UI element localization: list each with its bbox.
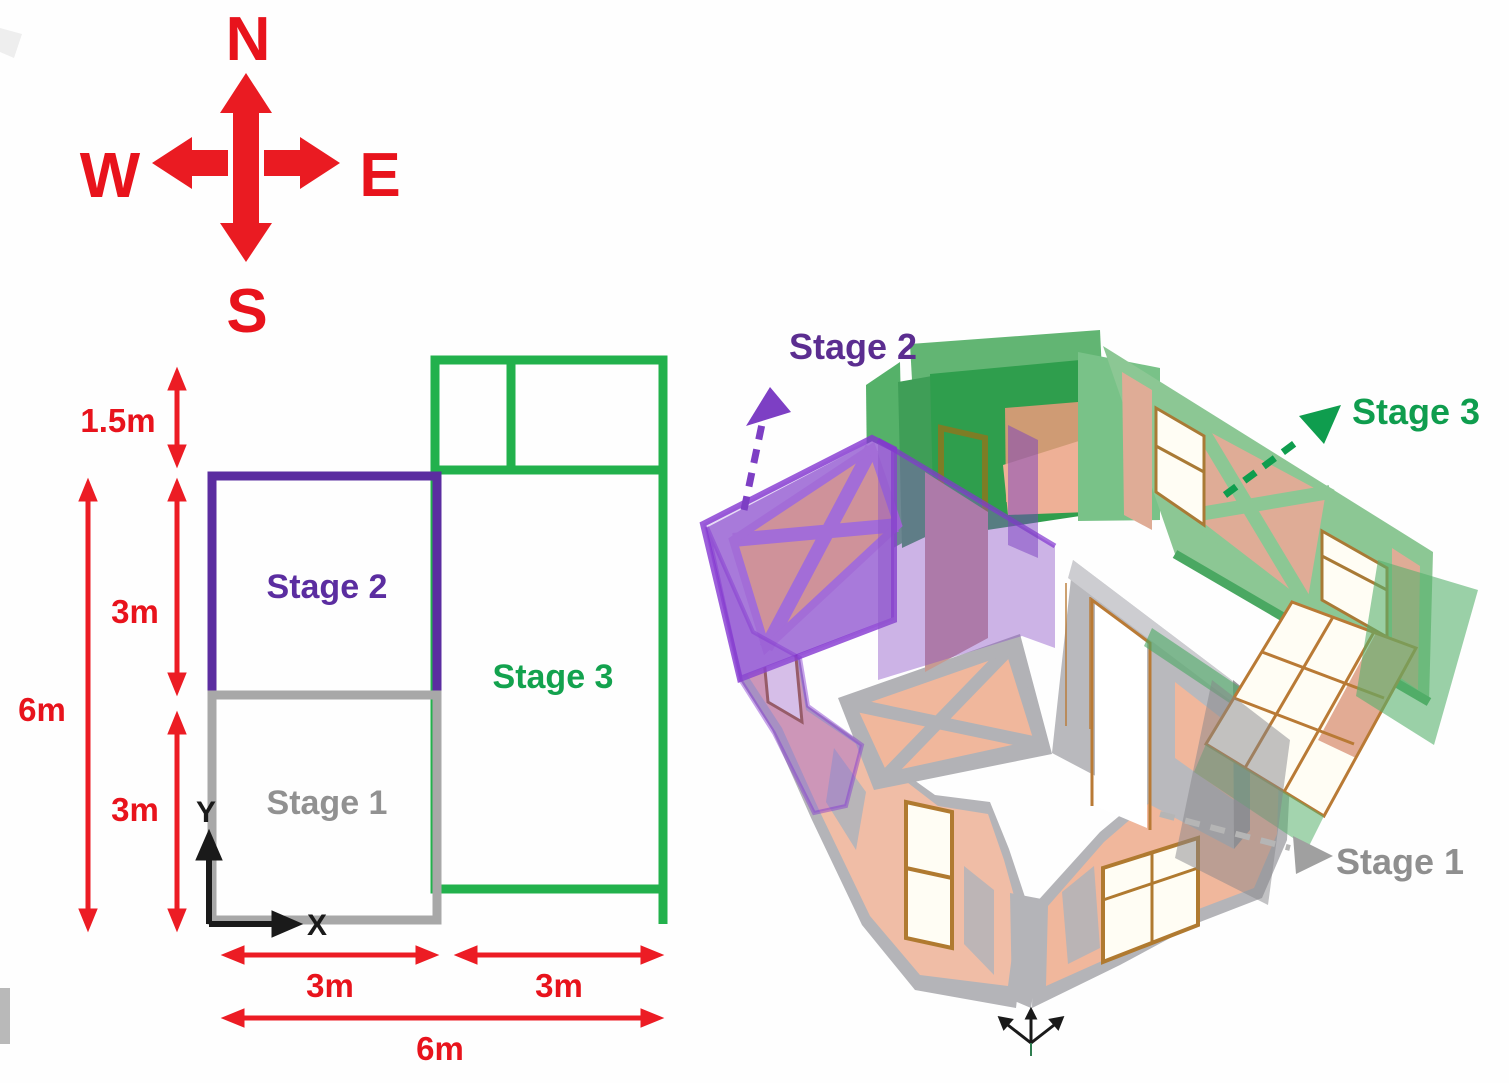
svg-text:N: N <box>226 5 271 74</box>
svg-text:3m: 3m <box>111 791 159 828</box>
svg-text:3m: 3m <box>535 967 583 1004</box>
svg-text:Stage 3: Stage 3 <box>1352 391 1480 432</box>
svg-text:3m: 3m <box>111 593 159 630</box>
svg-text:Y: Y <box>196 796 216 829</box>
svg-text:Stage 3: Stage 3 <box>493 658 614 696</box>
svg-text:6m: 6m <box>416 1030 464 1067</box>
svg-text:X: X <box>307 909 327 942</box>
svg-text:Stage 2: Stage 2 <box>789 326 917 367</box>
svg-text:Stage 2: Stage 2 <box>267 568 388 606</box>
svg-text:6m: 6m <box>18 691 66 728</box>
svg-text:W: W <box>80 139 141 211</box>
svg-text:Stage 1: Stage 1 <box>1336 841 1464 882</box>
svg-text:Stage 1: Stage 1 <box>267 784 388 822</box>
svg-text:E: E <box>359 141 400 210</box>
svg-text:1.5m: 1.5m <box>80 402 155 439</box>
svg-text:S: S <box>226 277 267 346</box>
svg-text:3m: 3m <box>306 967 354 1004</box>
